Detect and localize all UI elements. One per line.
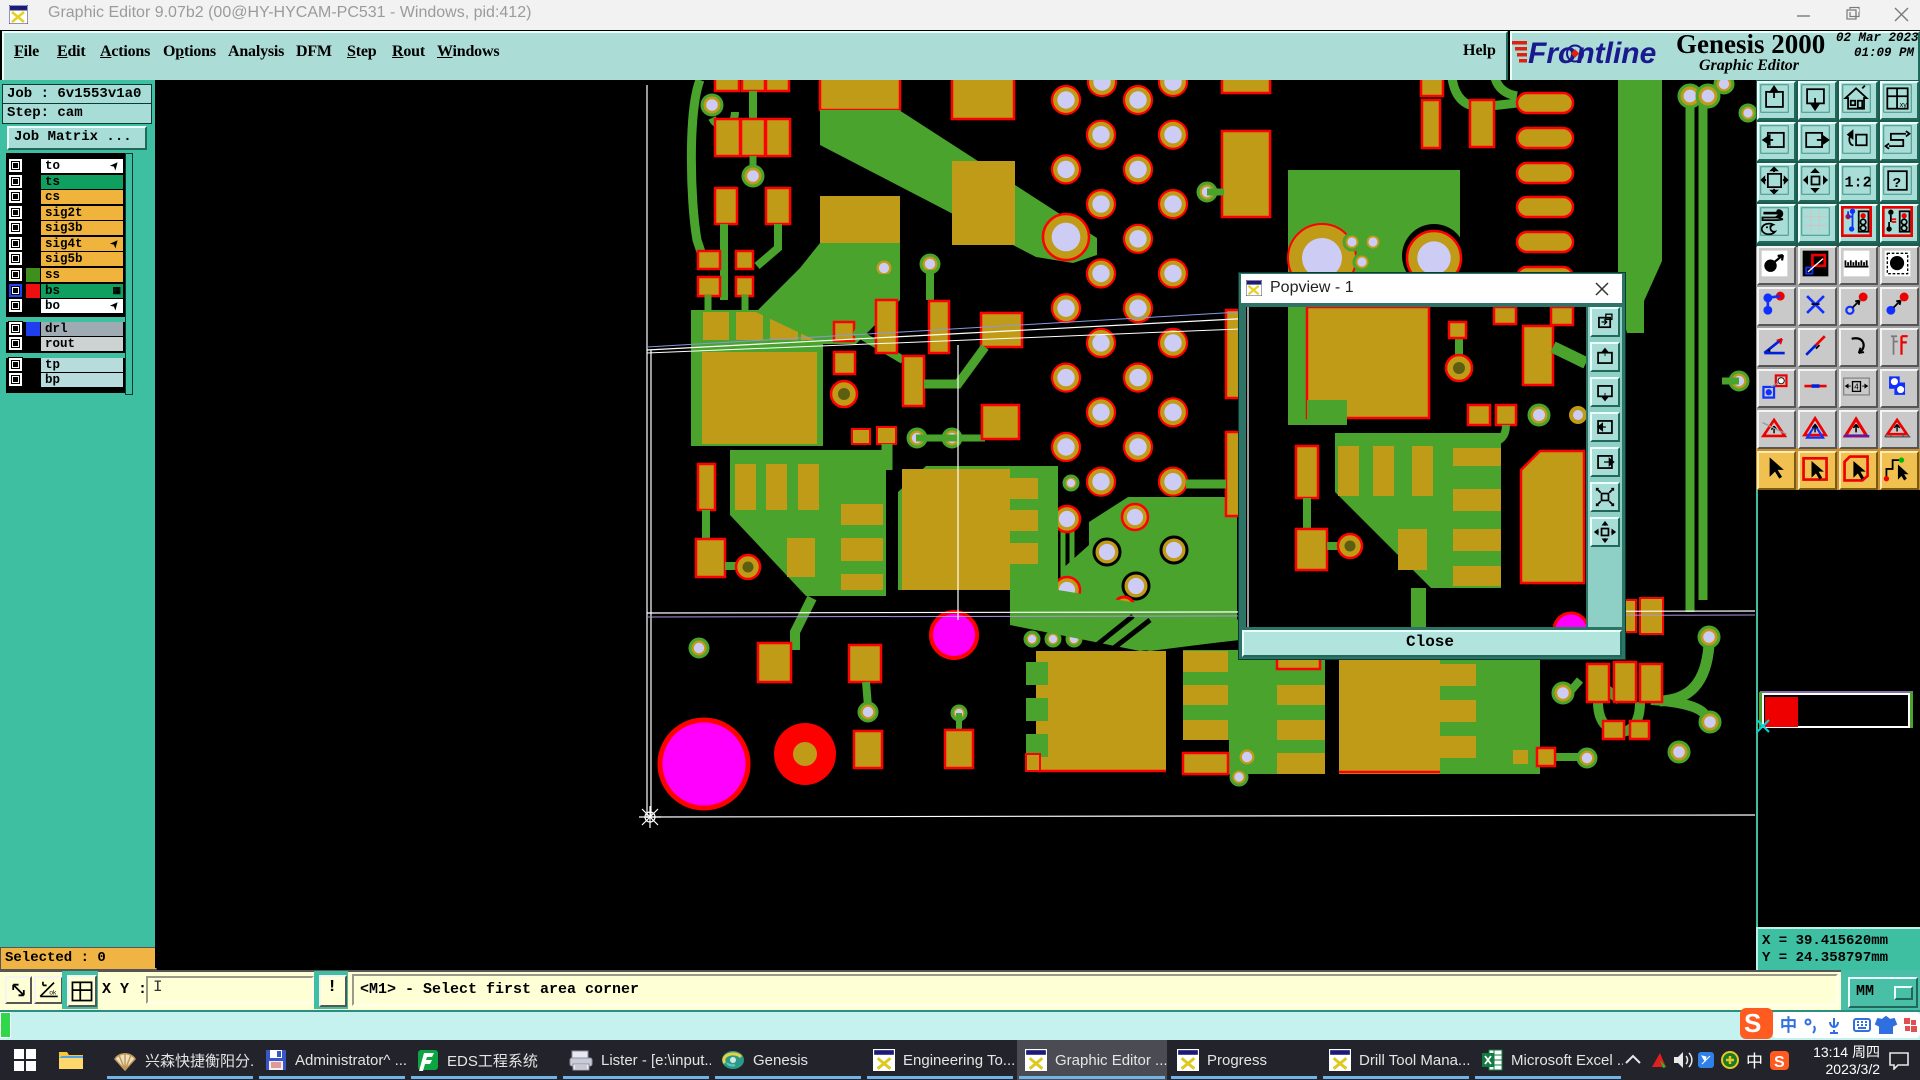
svg-text:Frontline: Frontline (1528, 37, 1656, 70)
svg-text:中: 中 (1746, 1052, 1763, 1071)
svg-text:中: 中 (1780, 1015, 1797, 1035)
svg-text:?: ? (1893, 176, 1902, 192)
svg-text:1:2: 1:2 (1845, 173, 1872, 191)
svg-text:4: 4 (1854, 383, 1859, 392)
svg-text:xy: xy (1900, 101, 1908, 109)
svg-text:ok: ok (49, 990, 57, 997)
svg-text:S: S (1774, 1054, 1785, 1071)
